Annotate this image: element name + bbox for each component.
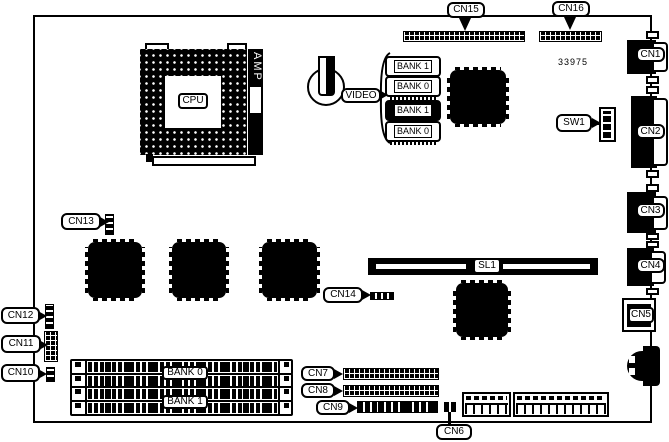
qfp-chip — [456, 283, 508, 337]
cn6-connector — [444, 402, 457, 412]
slot-clip — [278, 402, 290, 414]
qfp-pins — [142, 247, 145, 293]
battery-post-dark — [328, 56, 335, 96]
cn2-label: CN2 — [636, 124, 665, 139]
part-number: 33975 — [558, 57, 588, 67]
video-memory-chip: BANK 0 — [385, 76, 441, 97]
slot-key — [503, 264, 590, 269]
cn6-label: CN6 — [436, 424, 472, 440]
qfp-pins — [169, 247, 172, 293]
qfp-pins — [447, 75, 450, 119]
qfp-pins — [453, 288, 456, 332]
qfp-chip — [262, 242, 317, 298]
dip-switch-segments — [603, 111, 611, 138]
jack-screw — [646, 76, 659, 84]
sw1-label: SW1 — [556, 114, 592, 132]
slot-clip — [278, 388, 290, 400]
slot-clip — [278, 361, 290, 373]
jack-screw — [646, 86, 659, 94]
cn16-connector — [539, 31, 602, 42]
din-notch — [629, 368, 635, 375]
terminal-contacts — [517, 396, 605, 400]
cn16-label: CN16 — [552, 1, 590, 17]
cn9-pointer — [349, 403, 358, 413]
cn10-label: CN10 — [1, 364, 40, 382]
chip-pins — [390, 142, 436, 145]
qfp-pins — [177, 239, 221, 242]
bank1-label: BANK 1 — [162, 395, 208, 409]
terminal-block — [462, 392, 511, 417]
motherboard-diagram: CN15 CN16 CPU AMP VIDEO BANK 1 BANK 0 BA… — [0, 0, 669, 442]
qfp-pins — [93, 239, 137, 242]
cn7-connector — [343, 368, 439, 380]
cn10-connector — [46, 367, 55, 382]
sw1-pointer — [592, 118, 601, 128]
qfp-pins — [93, 298, 137, 301]
cn9-label: CN9 — [316, 400, 350, 415]
cn14-connector — [370, 292, 394, 300]
qfp-pins — [317, 247, 320, 293]
socket-bar-window — [250, 87, 261, 113]
video-chip-label: BANK 1 — [394, 104, 432, 117]
cn7-label: CN7 — [301, 366, 335, 381]
cn15-pointer — [459, 18, 471, 31]
terminal-teeth — [516, 403, 606, 414]
qfp-pins — [267, 239, 312, 242]
cn12-pointer — [38, 311, 47, 321]
cn8-connector — [343, 385, 439, 397]
cn11-label: CN11 — [1, 335, 41, 353]
sw1-dip-switch — [599, 107, 616, 142]
jack-screw — [646, 241, 659, 248]
cn14-label: CN14 — [323, 287, 363, 303]
cn1-label: CN1 — [636, 47, 665, 62]
qfp-chip — [172, 242, 226, 298]
video-chip-label: BANK 1 — [394, 60, 432, 73]
din-notch — [629, 356, 635, 363]
qfp-pins — [506, 75, 509, 119]
video-chip-label: BANK 0 — [394, 80, 432, 93]
jack-screw — [646, 170, 659, 178]
cn3-label: CN3 — [636, 203, 665, 218]
terminal-teeth — [465, 403, 508, 414]
video-pointer — [381, 91, 388, 99]
qfp-pins — [259, 247, 262, 293]
jack-screw — [646, 288, 659, 295]
cn10-pointer — [38, 369, 47, 379]
cn8-pointer — [334, 386, 343, 396]
slot-clip — [73, 402, 87, 414]
qfp-chip — [450, 70, 506, 124]
cn4-label: CN4 — [636, 258, 665, 273]
cn7-pointer — [334, 369, 343, 379]
cn16-pointer — [564, 17, 576, 30]
qfp-pins — [461, 280, 503, 283]
video-memory-chip-highlighted: BANK 1 — [385, 100, 441, 121]
qfp-pins — [461, 337, 503, 340]
jack-screw — [646, 184, 659, 192]
qfp-pins — [177, 298, 221, 301]
qfp-pins — [226, 247, 229, 293]
terminal-block — [513, 392, 609, 417]
slot-clip — [73, 361, 87, 373]
amp-socket-bar: AMP — [248, 49, 263, 155]
cpu-socket: CPU AMP — [140, 43, 266, 168]
cn13-label: CN13 — [61, 213, 101, 230]
qfp-pins — [267, 298, 312, 301]
terminal-contacts — [466, 396, 507, 400]
cn11-pointer — [39, 340, 48, 350]
cn13-pointer — [100, 217, 109, 227]
amp-brand-text: AMP — [223, 52, 263, 66]
cn8-label: CN8 — [301, 383, 335, 398]
qfp-pins — [85, 247, 88, 293]
video-memory-chip: BANK 1 — [385, 56, 441, 77]
jack-screw — [646, 233, 659, 240]
slot-key — [376, 264, 466, 269]
qfp-pins — [508, 288, 511, 332]
video-memory-chip: BANK 0 — [385, 121, 441, 142]
qfp-chip — [88, 242, 142, 298]
cn15-label: CN15 — [447, 2, 485, 18]
sl1-label: SL1 — [473, 258, 501, 274]
qfp-pins — [455, 67, 501, 70]
slot-clip — [73, 388, 87, 400]
cpu-label: CPU — [178, 93, 208, 109]
cn5-label: CN5 — [628, 307, 654, 323]
cn9-connector — [357, 401, 438, 413]
cn14-pointer — [362, 290, 371, 300]
battery-post — [318, 56, 328, 96]
socket-lever — [152, 156, 256, 166]
cn15-connector — [403, 31, 525, 42]
jack-screw — [646, 31, 659, 39]
bank0-label: BANK 0 — [162, 366, 208, 380]
video-label: VIDEO — [341, 88, 381, 103]
cn12-label: CN12 — [1, 307, 40, 324]
qfp-pins — [455, 124, 501, 127]
video-chip-label: BANK 0 — [394, 125, 432, 138]
